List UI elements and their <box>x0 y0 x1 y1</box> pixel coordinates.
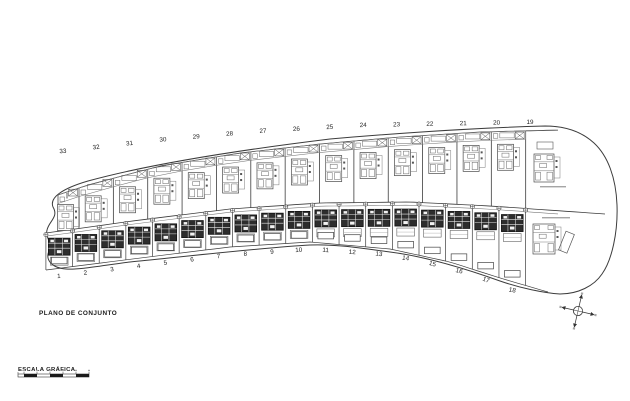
unit-pool <box>291 232 307 239</box>
house-plan-showhome <box>533 224 561 254</box>
bottom-unit <box>48 238 70 265</box>
plan-title: PLANO DE CONJUNTO <box>39 310 117 317</box>
carport-box <box>253 154 257 159</box>
roof-detail <box>503 216 507 219</box>
bottom-unit <box>475 213 497 269</box>
compass-letter-smudge <box>559 306 562 309</box>
micro-text-smudge <box>542 217 570 218</box>
roof-detail <box>50 240 54 243</box>
roof-detail <box>464 213 468 216</box>
unit-pool <box>158 244 174 251</box>
site-plan-canvas: 3332313029282726252423222120191234567891… <box>0 0 630 401</box>
marker-circle-icon <box>177 215 181 219</box>
carport-box <box>390 140 395 145</box>
roof-detail <box>84 246 89 249</box>
scale-graphic-label: ESCALA GRÁFICA <box>18 366 76 373</box>
plot-number-top: 26 <box>293 126 301 133</box>
unit-pool <box>451 254 467 261</box>
house-plan <box>360 153 382 179</box>
marker-circle-icon <box>524 208 528 212</box>
plot-number-bottom: 10 <box>295 247 303 255</box>
house-detail <box>75 211 77 213</box>
bottom-unit <box>315 210 337 239</box>
roof-detail <box>370 211 374 214</box>
house-detail <box>343 168 345 170</box>
house-detail <box>446 154 448 156</box>
roof-detail <box>344 211 348 214</box>
marker-circle-icon <box>204 211 208 215</box>
plot-number-bottom: 14 <box>402 255 411 263</box>
bottom-unit <box>128 227 150 254</box>
roof-detail <box>144 229 148 232</box>
carport-box <box>81 190 86 195</box>
carport-outline <box>354 138 388 150</box>
roof-detail <box>477 214 481 217</box>
roof-detail <box>297 223 302 226</box>
house-detail <box>412 162 414 164</box>
roof-detail <box>171 225 175 228</box>
carport-box <box>425 138 430 143</box>
house-plan <box>429 148 451 174</box>
unit-pool <box>425 247 441 254</box>
plot-number-bottom: 17 <box>481 276 491 285</box>
outbuilding-rect <box>537 142 553 149</box>
marker-circle-icon <box>444 203 448 207</box>
plot-number-top: 27 <box>259 128 267 135</box>
carport-strip <box>320 141 354 153</box>
roof-detail <box>377 221 382 224</box>
marker-circle-icon <box>124 221 128 225</box>
roof-detail <box>450 213 454 216</box>
house-detail <box>481 157 483 159</box>
scale-tick-label-smudge <box>75 370 77 371</box>
roof-detail <box>290 213 294 216</box>
house-plan <box>120 187 142 213</box>
bottom-unit <box>448 211 470 260</box>
plot-number-bottom: 1 <box>57 273 61 280</box>
plot-number-bottom: 12 <box>348 249 356 257</box>
house-plan <box>463 145 485 171</box>
plot-number-top: 24 <box>360 122 368 129</box>
marker-circle-icon <box>70 229 74 233</box>
carport-outline <box>320 141 354 153</box>
plot-number-bottom: 11 <box>322 247 330 254</box>
unit-pool <box>265 233 281 240</box>
compass-rose-icon <box>555 288 601 334</box>
house-detail <box>240 179 242 181</box>
unit-pool <box>398 241 414 248</box>
carport-box <box>356 143 361 148</box>
roof-detail <box>304 213 308 216</box>
roof-detail <box>184 222 188 225</box>
roof-detail <box>104 232 108 235</box>
carport-outline <box>113 169 147 187</box>
house-detail <box>309 171 311 173</box>
plot-number-bottom: 13 <box>375 251 383 259</box>
roof-detail <box>237 216 241 219</box>
roof-detail <box>430 222 435 225</box>
unit-pool <box>78 254 94 261</box>
roof-detail <box>64 240 68 243</box>
plot-number-bottom: 8 <box>243 251 247 258</box>
plot-number-top: 33 <box>59 148 67 155</box>
roof-detail <box>217 229 222 232</box>
house-detail <box>137 193 139 195</box>
house-detail <box>137 199 139 201</box>
house-detail <box>171 184 173 186</box>
roof-detail <box>251 216 255 219</box>
roof-detail <box>164 236 169 239</box>
house-detail <box>171 190 173 192</box>
carport-strip <box>491 131 525 140</box>
carport-bay <box>259 151 273 156</box>
house-plan <box>85 196 107 222</box>
house-plan <box>223 167 245 193</box>
compass-arrowhead-icon <box>561 305 566 310</box>
roof-detail <box>197 222 201 225</box>
carport-box <box>184 164 189 169</box>
scale-tick-label-smudge <box>23 370 25 371</box>
scale-bar-segment <box>24 374 37 377</box>
carport-strip <box>354 138 388 150</box>
roof-detail <box>384 211 388 214</box>
marker-circle-icon <box>150 218 154 222</box>
house-plan-19 <box>534 154 560 182</box>
house-outline <box>534 154 554 182</box>
roof-detail <box>210 219 214 222</box>
carport-strip <box>423 133 457 144</box>
roof-detail <box>357 211 361 214</box>
house-detail <box>412 156 414 158</box>
house-plan <box>498 144 520 170</box>
carport-box <box>218 159 223 164</box>
unit-pool <box>318 232 334 239</box>
house-plan <box>257 163 279 189</box>
house-detail <box>446 160 448 162</box>
plot-number-top: 32 <box>92 144 100 152</box>
compass-letter-smudge <box>581 292 584 295</box>
bottom-unit <box>75 234 97 261</box>
marker-circle-icon <box>44 233 48 237</box>
unit-pool <box>105 251 121 258</box>
bottom-unit <box>208 217 230 244</box>
roof-detail <box>190 233 195 236</box>
plot-number-bottom: 9 <box>270 249 274 256</box>
house-plan <box>326 156 348 182</box>
carport-box <box>287 150 292 155</box>
house-detail <box>103 208 105 210</box>
plot-number-top: 25 <box>326 124 334 131</box>
roof-detail <box>224 219 228 222</box>
carport-box <box>150 171 155 176</box>
unit-pool <box>371 237 387 244</box>
compass-arrowhead-icon <box>590 312 595 317</box>
roof-detail <box>397 211 401 214</box>
compass-group <box>555 288 601 334</box>
plot-number-bottom: 15 <box>428 260 437 269</box>
unit-pool <box>51 257 67 264</box>
roof-detail <box>331 211 335 214</box>
marker-circle-icon <box>497 206 501 210</box>
carport-box <box>322 146 327 151</box>
micro-text-smudge <box>540 186 566 187</box>
carport-strip <box>79 178 113 196</box>
scale-bar-segment <box>50 374 63 377</box>
carport-bay <box>67 193 68 198</box>
roof-detail <box>490 214 494 217</box>
plot-number-top: 31 <box>126 140 134 148</box>
plot-number-top: 23 <box>393 121 401 128</box>
roof-detail <box>137 239 142 242</box>
house-plan <box>154 178 176 204</box>
house-detail <box>274 169 276 171</box>
house-detail <box>103 202 105 204</box>
plot-number-top: 19 <box>526 119 534 126</box>
marker-circle-icon <box>230 208 234 212</box>
roof-detail <box>510 227 515 230</box>
scale-tick-label-smudge <box>88 370 90 371</box>
house-plan <box>188 173 210 199</box>
plot-number-bottom: 3 <box>110 266 115 273</box>
house-outline <box>533 224 555 254</box>
carport-bay <box>156 167 170 172</box>
roof-detail <box>517 216 521 219</box>
plot-number-top: 22 <box>426 121 434 128</box>
plan-drawing: 3332313029282726252423222120191234567891… <box>44 119 617 295</box>
unit-pool <box>345 235 361 242</box>
compass-letter-smudge <box>594 314 597 317</box>
carport-strip <box>182 157 216 171</box>
plot-number-bottom: 5 <box>163 259 168 266</box>
plot-number-bottom: 6 <box>190 256 195 263</box>
carport-bay <box>500 133 514 138</box>
bottom-unit <box>288 211 310 238</box>
roof-detail <box>270 225 275 228</box>
roof-detail <box>117 232 121 235</box>
carport-box <box>493 134 498 139</box>
roof-detail <box>424 212 428 215</box>
carport-strip <box>251 148 285 160</box>
marker-circle-icon <box>390 202 394 206</box>
plot-number-top: 20 <box>493 120 501 127</box>
house-detail <box>378 159 380 161</box>
unit-pool <box>211 237 227 244</box>
carport-outline <box>79 178 113 196</box>
plot-number-bottom: 7 <box>217 253 222 260</box>
carport-box <box>60 197 65 202</box>
roof-detail <box>317 211 321 214</box>
house-detail <box>274 175 276 177</box>
house-detail <box>557 236 559 238</box>
roof-detail <box>264 215 268 218</box>
unit-pool <box>238 235 254 242</box>
bottom-unit <box>501 215 523 278</box>
plot-number-bottom: 2 <box>83 269 88 276</box>
plot-number-top: 28 <box>226 130 234 138</box>
compass-arrowhead-icon <box>579 294 584 299</box>
marker-circle-icon <box>97 225 101 229</box>
plot-number-bottom: 16 <box>455 267 464 276</box>
carport-strip <box>285 144 319 156</box>
house-detail <box>206 179 208 181</box>
carport-bay <box>397 138 411 143</box>
roof-detail <box>411 211 415 214</box>
carport-strip <box>148 162 182 177</box>
house-detail <box>343 162 345 164</box>
roof-detail <box>91 236 95 239</box>
bottom-unit <box>182 221 204 248</box>
plot-number-bottom: 4 <box>137 263 142 270</box>
roof-detail <box>157 225 161 228</box>
plot-number-top: 29 <box>192 133 200 141</box>
bottom-unit <box>422 210 444 254</box>
house-detail <box>557 230 559 232</box>
unit-pool <box>185 241 201 248</box>
bottom-unit <box>235 215 257 242</box>
scale-tick-label-smudge <box>49 370 51 371</box>
carport-outline <box>148 162 182 177</box>
carport-bay <box>225 156 239 161</box>
carport-strip <box>457 132 491 142</box>
plot-number-bottom: 18 <box>508 286 517 294</box>
house-detail <box>309 165 311 167</box>
site-plan-page: 3332313029282726252423222120191234567891… <box>0 0 630 401</box>
bottom-unit <box>102 231 124 258</box>
marker-circle-icon <box>417 202 421 206</box>
house-plan <box>394 150 416 176</box>
marker-circle-icon <box>284 205 288 209</box>
house-detail <box>206 185 208 187</box>
plot-number-top: 21 <box>460 120 468 127</box>
bottom-unit <box>368 209 390 243</box>
scale-tick-label-smudge <box>36 370 38 371</box>
house-detail <box>378 165 380 167</box>
roof-detail <box>323 222 328 225</box>
house-detail <box>481 151 483 153</box>
roof-detail <box>403 221 408 224</box>
unit-pool <box>504 271 520 278</box>
house-plan <box>58 205 80 231</box>
roof-detail <box>483 225 488 228</box>
carport-bay <box>431 136 445 141</box>
compass-letter-smudge <box>573 327 576 330</box>
carport-bay <box>294 148 308 153</box>
carport-bay <box>362 141 376 146</box>
marker-circle-icon <box>470 205 474 209</box>
plot-number-top: 30 <box>159 136 167 144</box>
marker-circle-icon <box>257 207 261 211</box>
roof-detail <box>350 222 355 225</box>
roof-detail <box>110 243 115 246</box>
bottom-unit <box>262 213 284 240</box>
marker-circle-icon <box>337 202 341 206</box>
carport-strip <box>58 188 79 204</box>
bottom-unit <box>155 224 177 251</box>
house-detail <box>75 217 77 219</box>
house-detail <box>556 166 558 168</box>
house-detail <box>556 160 558 162</box>
marker-circle-icon <box>310 203 314 207</box>
carport-bay <box>465 134 479 139</box>
unit-pool <box>478 262 494 269</box>
roof-detail <box>457 223 462 226</box>
roof-detail <box>437 212 441 215</box>
compass-arrowhead-icon <box>572 323 577 328</box>
carport-bay <box>122 175 136 180</box>
scale-tick-label-smudge <box>62 370 64 371</box>
roof-detail <box>77 236 81 239</box>
scale-bar-segment <box>76 374 89 377</box>
roof-detail <box>277 215 281 218</box>
house-plan <box>291 159 313 185</box>
carport-box <box>459 135 464 140</box>
bottom-unit <box>342 210 364 242</box>
marker-circle-icon <box>364 202 368 206</box>
bottom-unit <box>395 209 417 248</box>
carport-box <box>115 180 120 185</box>
roof-detail <box>243 227 248 230</box>
roof-detail <box>57 250 62 253</box>
house-detail <box>240 173 242 175</box>
carport-bay <box>328 144 342 149</box>
house-detail <box>515 150 517 152</box>
carport-strip <box>113 169 147 187</box>
roof-detail <box>130 229 134 232</box>
house-detail <box>515 156 517 158</box>
carport-bay <box>191 161 205 166</box>
unit-pool <box>131 247 147 254</box>
